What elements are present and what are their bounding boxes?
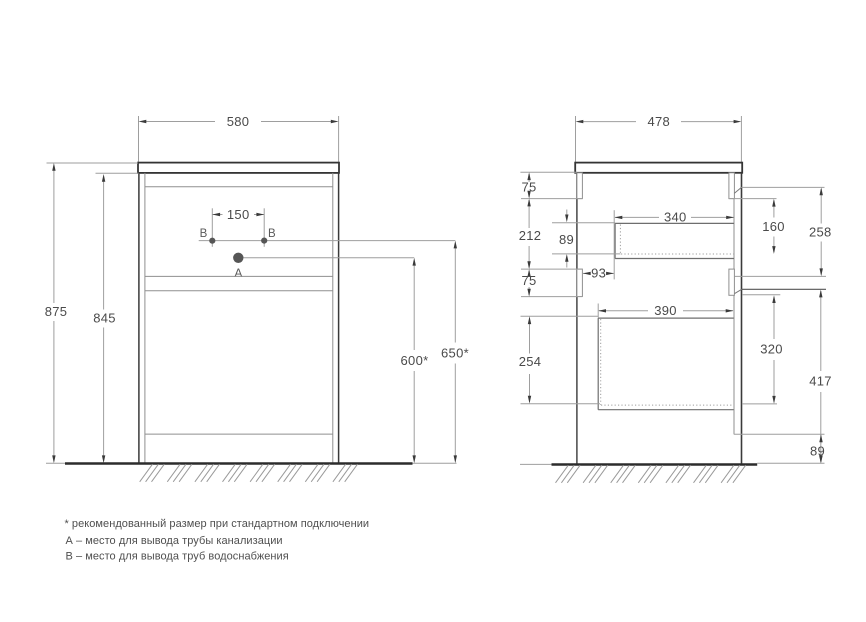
svg-text:390: 390: [654, 303, 677, 318]
svg-text:650*: 650*: [441, 346, 469, 361]
svg-text:B: B: [268, 228, 276, 240]
svg-text:600*: 600*: [401, 353, 429, 368]
svg-text:89: 89: [810, 444, 825, 459]
svg-text:89: 89: [559, 232, 574, 247]
svg-text:75: 75: [521, 180, 536, 195]
svg-text:417: 417: [809, 374, 832, 389]
svg-text:93: 93: [591, 266, 606, 281]
svg-text:B: B: [200, 228, 208, 240]
svg-text:580: 580: [227, 114, 250, 129]
svg-text:В – место для вывода труб водо: В – место для вывода труб водоснабжения: [66, 550, 289, 562]
svg-text:340: 340: [664, 210, 687, 225]
svg-text:212: 212: [519, 228, 542, 243]
svg-text:478: 478: [648, 114, 671, 129]
svg-text:320: 320: [760, 342, 783, 357]
svg-text:* рекомендованный размер при с: * рекомендованный размер при стандартном…: [65, 518, 370, 530]
svg-text:150: 150: [227, 207, 250, 222]
svg-text:845: 845: [93, 310, 116, 325]
svg-text:254: 254: [519, 354, 542, 369]
svg-text:А – место для вывода трубы кан: А – место для вывода трубы канализации: [66, 535, 283, 547]
svg-text:160: 160: [762, 219, 785, 234]
svg-text:A: A: [234, 266, 242, 280]
svg-text:258: 258: [809, 225, 832, 240]
svg-text:75: 75: [521, 273, 536, 288]
svg-text:875: 875: [45, 304, 68, 319]
